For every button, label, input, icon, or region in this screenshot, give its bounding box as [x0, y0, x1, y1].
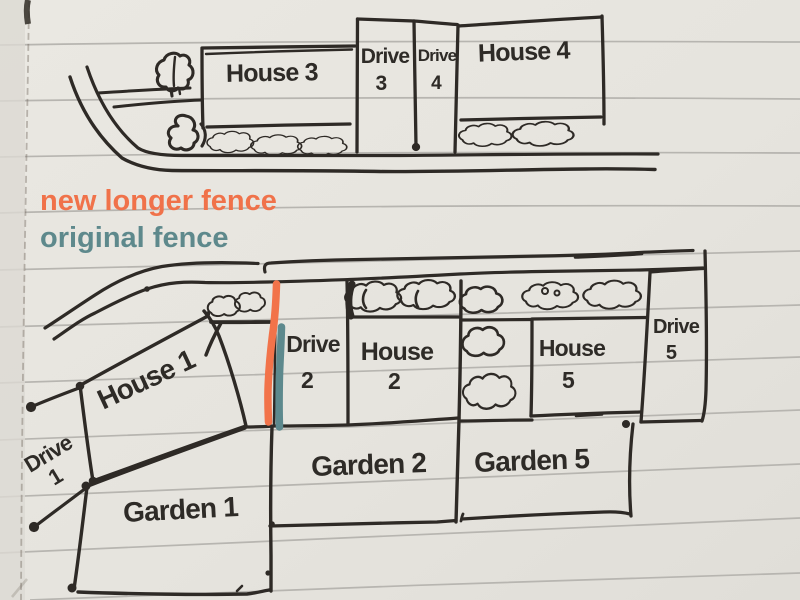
svg-text:Drive: Drive — [286, 331, 340, 357]
svg-text:Drive: Drive — [418, 46, 457, 65]
svg-text:4: 4 — [431, 73, 442, 94]
svg-text:2: 2 — [301, 367, 313, 393]
svg-text:new longer fence: new longer fence — [40, 185, 277, 217]
svg-text:Drive: Drive — [653, 316, 700, 338]
svg-text:3: 3 — [376, 72, 387, 95]
svg-text:House: House — [539, 335, 605, 361]
svg-text:House 3: House 3 — [226, 58, 318, 88]
svg-text:2: 2 — [388, 368, 400, 394]
svg-text:5: 5 — [666, 342, 677, 364]
svg-text:Garden 2: Garden 2 — [311, 447, 427, 482]
svg-text:House 4: House 4 — [478, 36, 571, 67]
svg-text:Drive: Drive — [361, 45, 410, 68]
svg-text:Garden 1: Garden 1 — [122, 491, 239, 528]
svg-text:Garden 5: Garden 5 — [474, 443, 590, 478]
svg-text:original fence: original fence — [40, 222, 229, 254]
svg-text:House: House — [361, 338, 434, 366]
svg-text:5: 5 — [562, 367, 575, 393]
